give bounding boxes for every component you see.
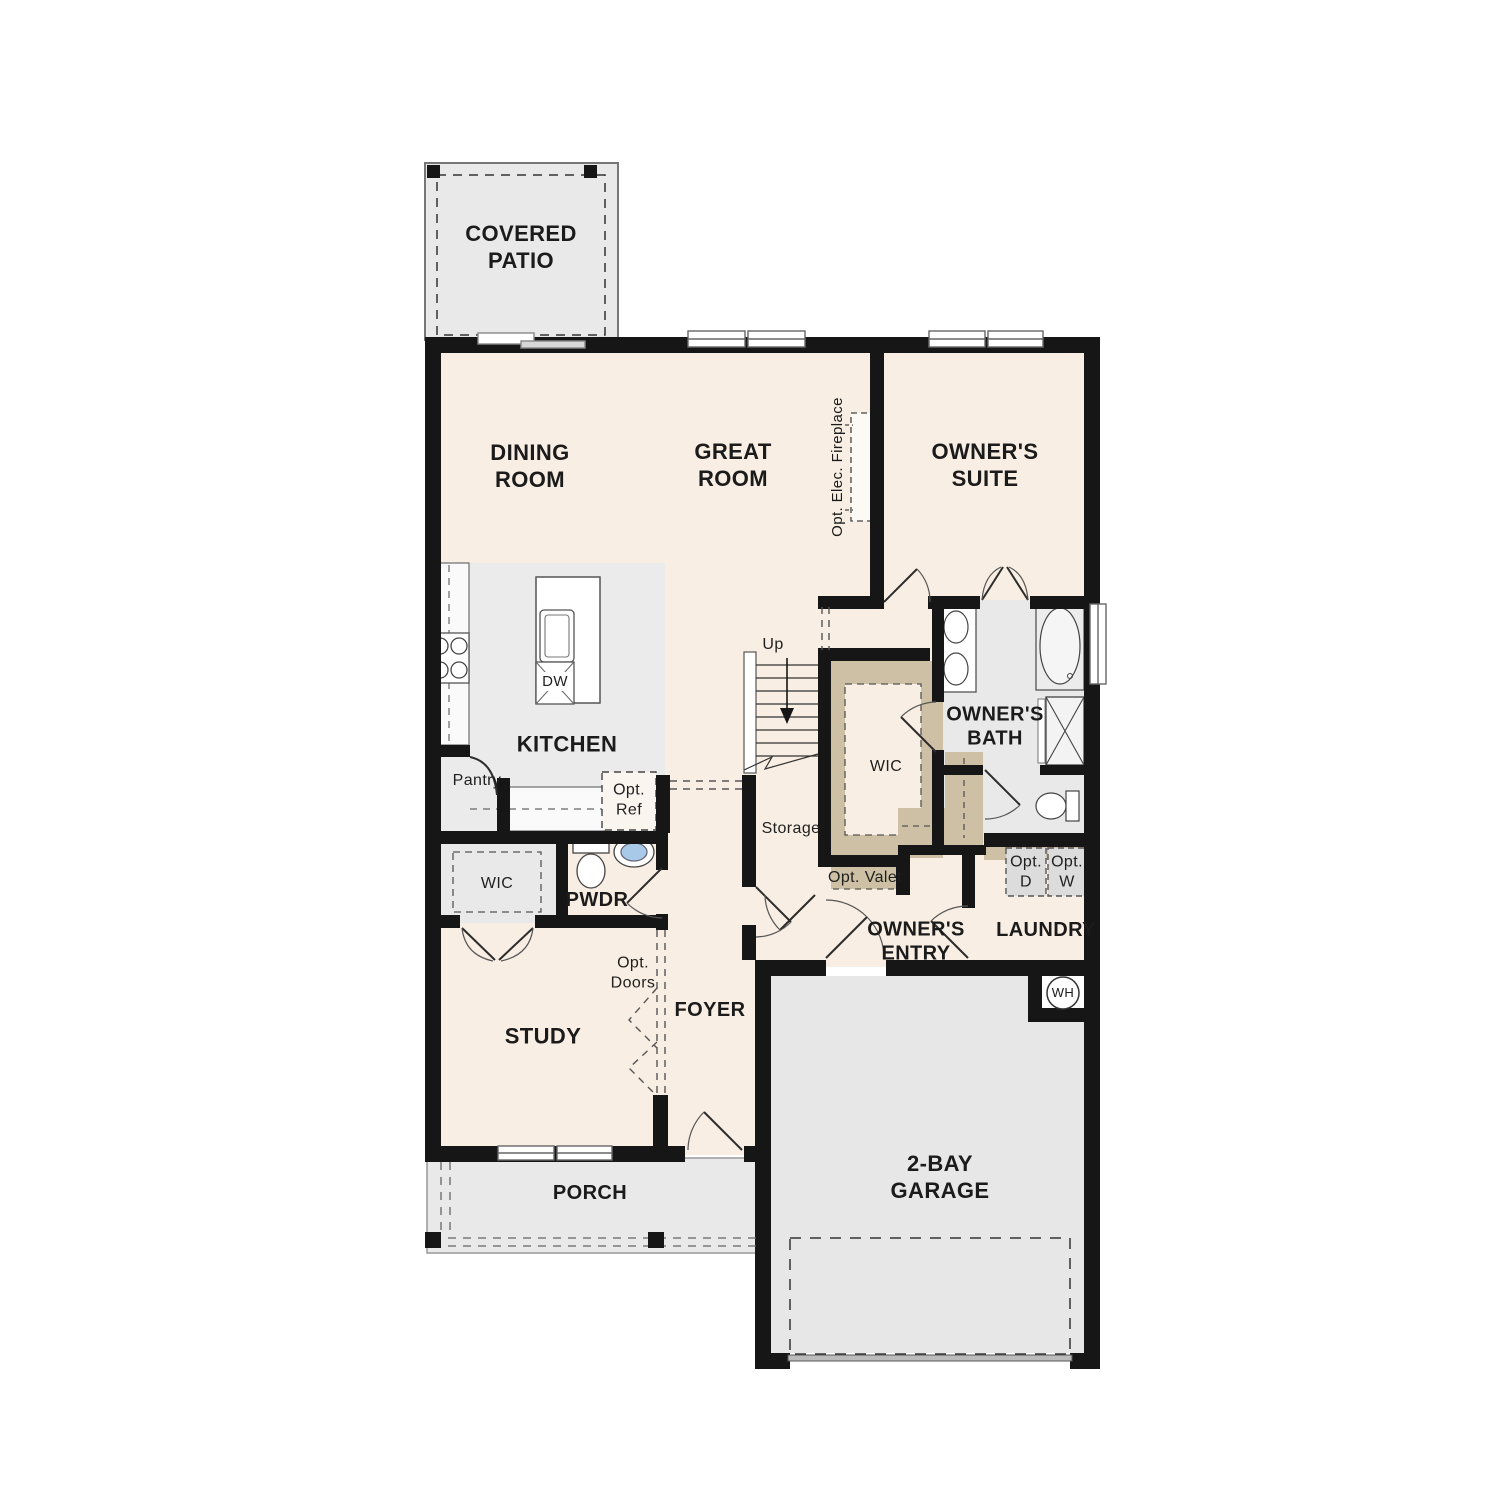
covered-patio-label: COVERED PATIO xyxy=(465,221,577,275)
laundry-label: LAUNDRY xyxy=(996,918,1096,942)
owners-entry-label: OWNER'S ENTRY xyxy=(867,918,965,967)
opt-washer-label: Opt. W xyxy=(1051,852,1083,891)
foyer-label: FOYER xyxy=(675,998,746,1022)
opt-fireplace-label: Opt. Elec. Fireplace xyxy=(829,397,847,537)
storage-label: Storage xyxy=(762,819,821,839)
toilet-bowl xyxy=(577,854,605,888)
water-heater-label: WH xyxy=(1052,985,1074,1001)
dining-room-label: DINING ROOM xyxy=(490,440,569,494)
opt-doors-label: Opt. Doors xyxy=(611,953,656,992)
opt-dryer-label: Opt. D xyxy=(1010,852,1042,891)
garage-door xyxy=(788,1355,1072,1361)
patio-post xyxy=(427,165,440,178)
dishwasher-label: DW xyxy=(542,673,568,691)
wc-toilet-tank xyxy=(1066,791,1079,821)
great-room-label: GREAT ROOM xyxy=(694,439,771,493)
study-foyer-area xyxy=(433,960,762,1155)
opt-ref-label: Opt. Ref xyxy=(613,780,645,819)
study-label: STUDY xyxy=(505,1024,582,1051)
wic-secondary-label: WIC xyxy=(481,874,513,894)
powder-room-label: PWDR xyxy=(566,888,629,912)
porch-post xyxy=(648,1232,664,1248)
porch-area xyxy=(427,1158,760,1253)
garage-label: 2-BAY GARAGE xyxy=(891,1151,990,1205)
patio-post xyxy=(584,165,597,178)
plan-canvas xyxy=(0,0,1500,1500)
owners-suite-label: OWNER'S SUITE xyxy=(931,439,1038,493)
porch-post xyxy=(425,1232,441,1248)
wic-primary-label: WIC xyxy=(870,757,902,777)
stairs-up-label: Up xyxy=(762,635,783,655)
floor-plan: COVERED PATIO DINING ROOM GREAT ROOM OWN… xyxy=(0,0,1500,1500)
vanity-sink xyxy=(944,611,968,643)
wc-toilet-bowl xyxy=(1036,793,1066,819)
porch-label: PORCH xyxy=(553,1181,627,1205)
owners-bath-label: OWNER'S BATH xyxy=(946,703,1044,752)
vanity-sink xyxy=(944,653,968,685)
stair-rail xyxy=(744,652,756,773)
opt-valet-label: Opt. Valet xyxy=(828,868,902,888)
pantry-label: Pantry xyxy=(453,771,502,791)
powder-sink-basin xyxy=(621,843,647,861)
kitchen-label: KITCHEN xyxy=(517,732,618,759)
